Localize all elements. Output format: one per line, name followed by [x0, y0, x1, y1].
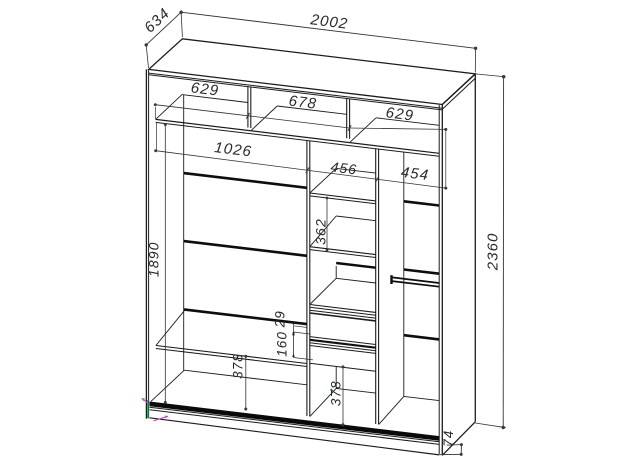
- svg-text:1890: 1890: [146, 242, 162, 278]
- svg-text:29: 29: [272, 310, 287, 328]
- svg-text:2360: 2360: [484, 233, 501, 272]
- svg-text:456: 456: [330, 158, 358, 177]
- svg-text:678: 678: [288, 92, 318, 112]
- svg-text:629: 629: [190, 79, 220, 99]
- svg-text:378: 378: [329, 380, 344, 406]
- svg-text:454: 454: [400, 164, 430, 184]
- svg-text:629: 629: [385, 104, 415, 124]
- svg-text:160: 160: [275, 331, 290, 357]
- svg-text:362: 362: [313, 218, 329, 245]
- svg-text:378: 378: [231, 353, 246, 379]
- svg-text:74: 74: [441, 430, 456, 447]
